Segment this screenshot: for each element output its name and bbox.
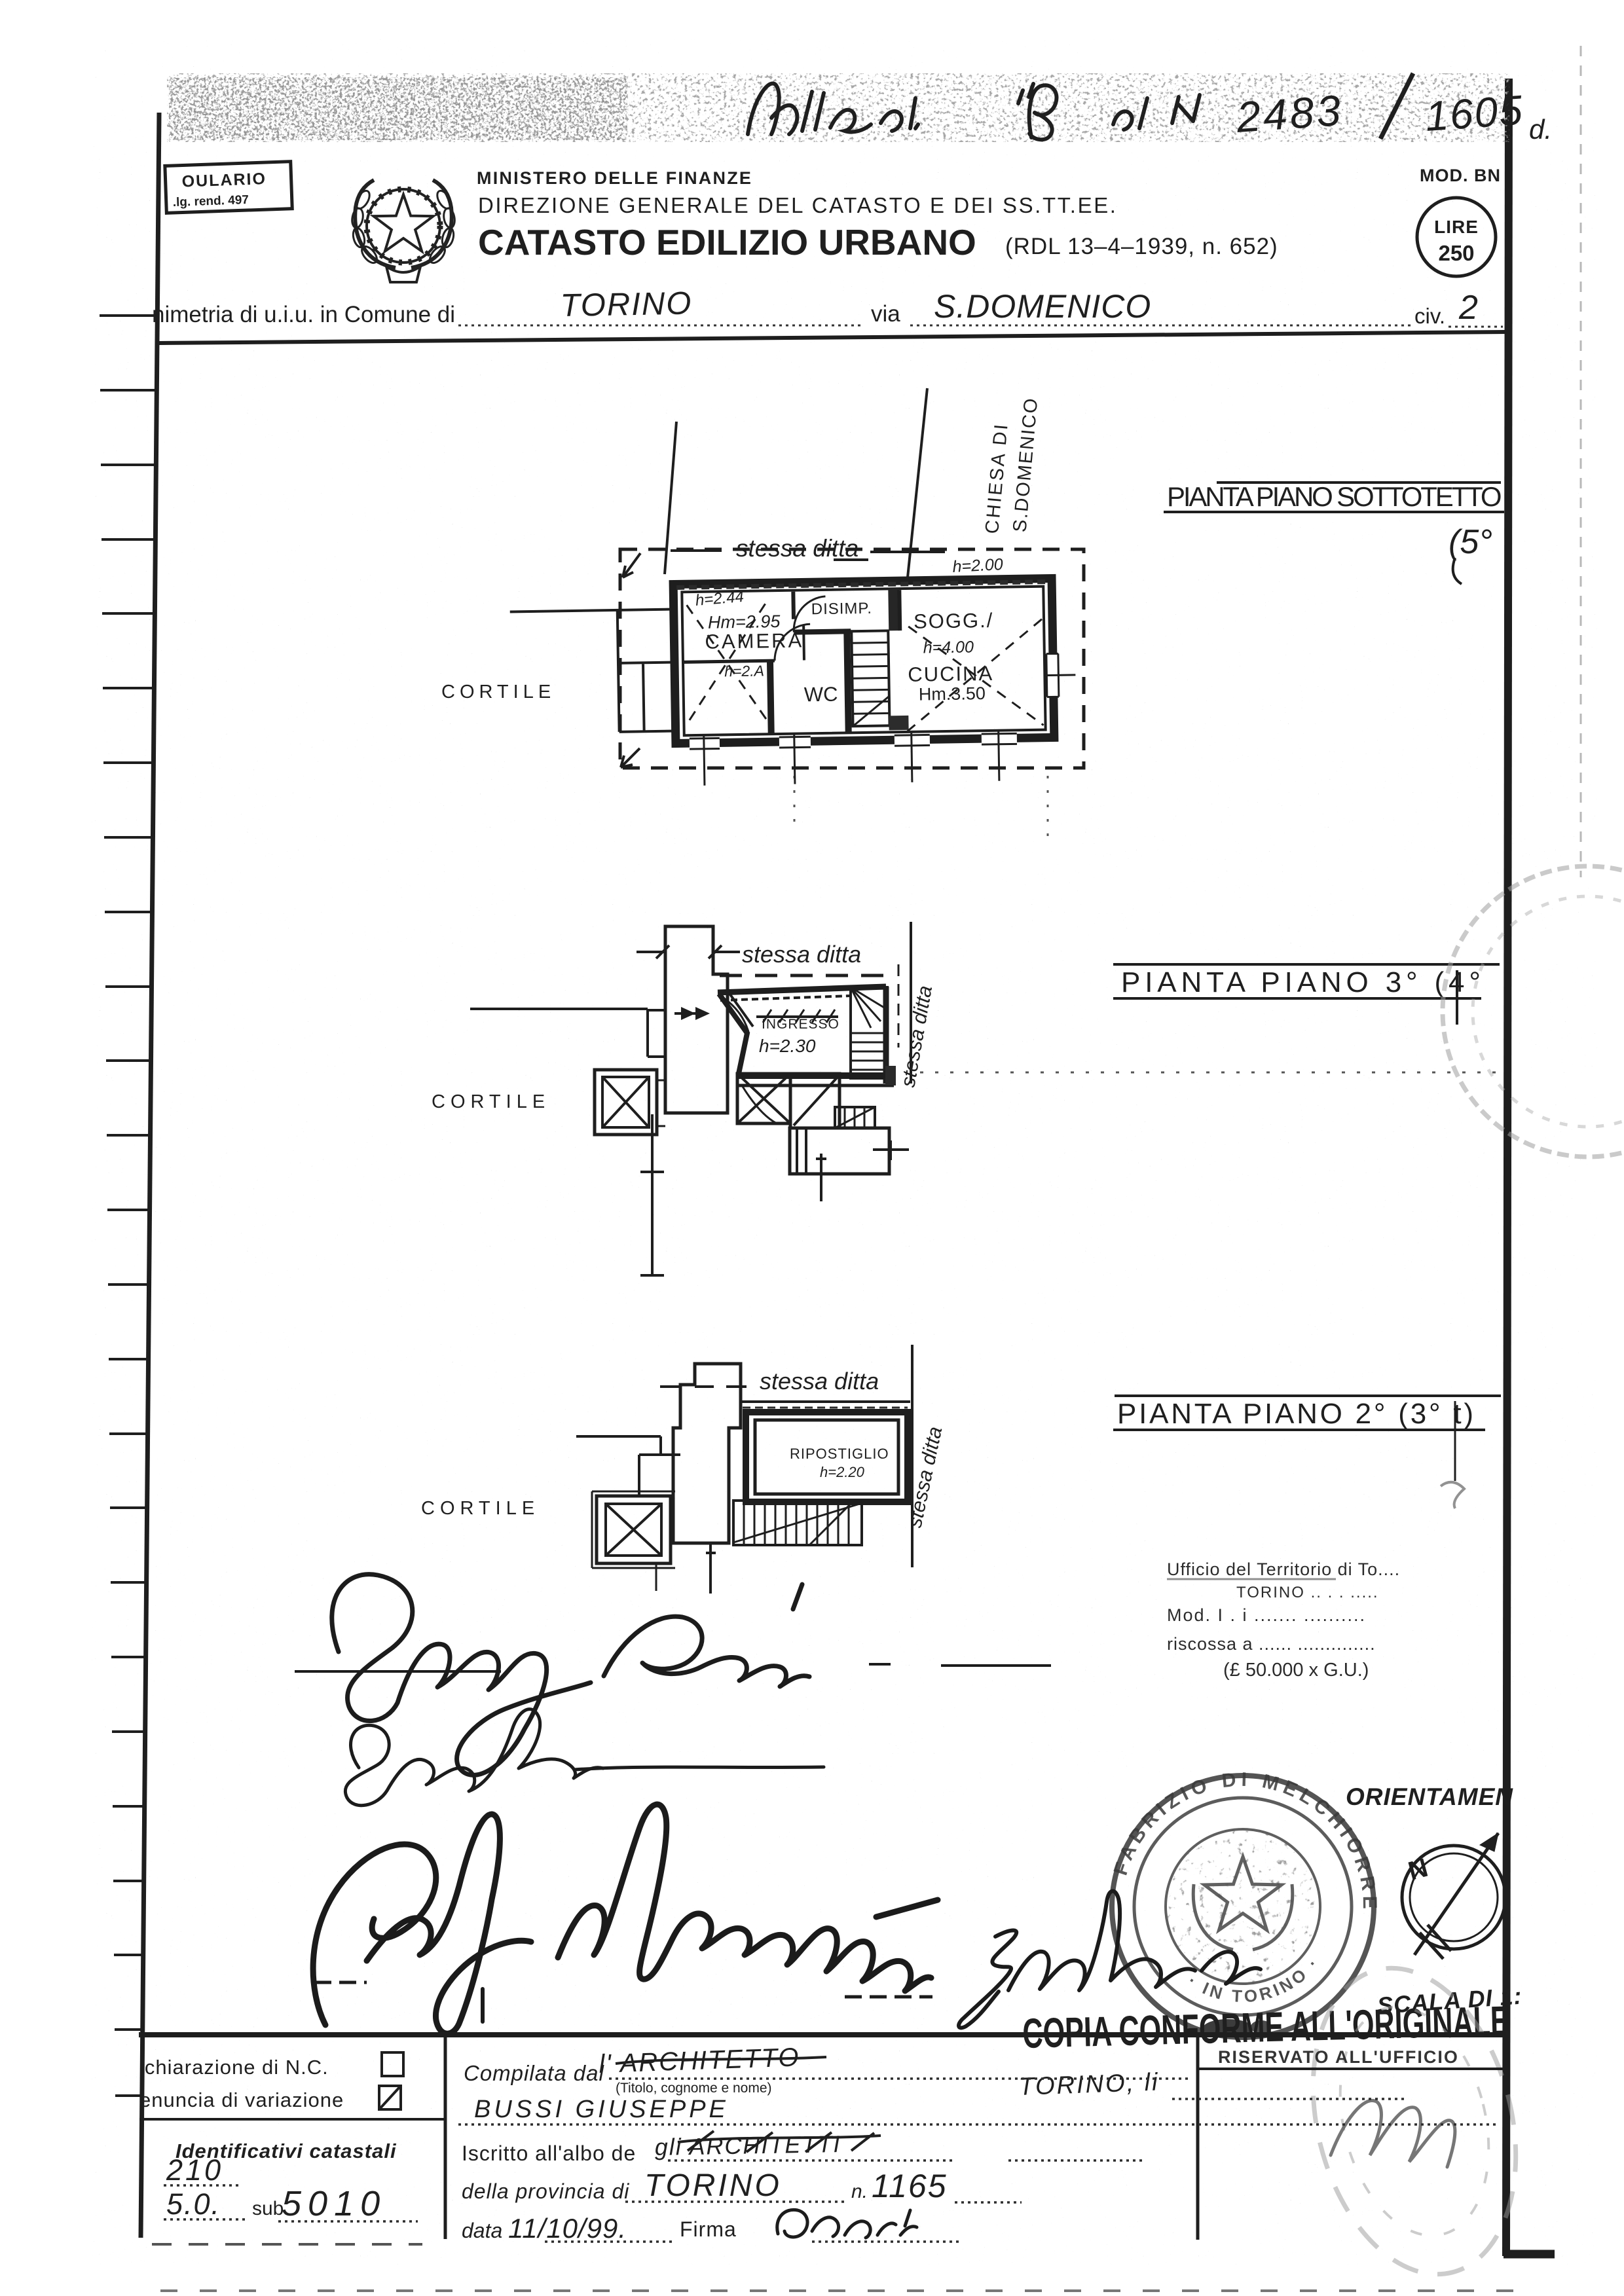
svg-text:stessa ditta: stessa ditta [760,1368,879,1394]
svg-text:(Titolo, cognome e nome): (Titolo, cognome e nome) [616,2081,772,2096]
svg-text:DISIMP.: DISIMP. [811,600,873,618]
svg-text:CORTILE: CORTILE [432,1091,550,1112]
svg-text:210: 210 [166,2153,223,2187]
svg-text:Mod. I . i ....... ..........: Mod. I . i ....... .......... [1167,1605,1366,1625]
svg-text:stessa ditta: stessa ditta [742,941,861,968]
svg-text:MOD. BN: MOD. BN [1420,166,1501,185]
svg-text:TORINO .. . . .....: TORINO .. . . ..... [1236,1584,1379,1601]
svg-text:250: 250 [1438,241,1474,265]
svg-text:CORTILE: CORTILE [441,682,555,702]
svg-text:CORTILE: CORTILE [421,1498,540,1519]
svg-text:MINISTERO DELLE FINANZE: MINISTERO DELLE FINANZE [477,168,752,188]
svg-text:TORINO: TORINO [560,285,693,323]
svg-text:d.: d. [1529,114,1552,145]
svg-text:ORIENTAMEN: ORIENTAMEN [1346,1783,1513,1810]
svg-text:LIRE: LIRE [1434,217,1479,237]
svg-text:PIANTA PIANO 3° (4°: PIANTA PIANO 3° (4° [1121,966,1481,998]
svg-text:WC: WC [804,683,838,706]
svg-text:1605: 1605 [1424,86,1525,140]
svg-text:2: 2 [1458,289,1478,327]
svg-text:OULARIO: OULARIO [181,170,267,191]
svg-text:(RDL 13–4–1939, n. 652): (RDL 13–4–1939, n. 652) [1005,234,1278,259]
svg-text:h=4.00: h=4.00 [923,638,974,657]
svg-text:CATASTO EDILIZIO URBANO: CATASTO EDILIZIO URBANO [478,222,976,263]
svg-text:5010: 5010 [282,2184,386,2223]
svg-text:SOGG./: SOGG./ [913,609,994,633]
svg-text:Compilata dal: Compilata dal [464,2061,604,2085]
svg-text:S.DOMENICO: S.DOMENICO [934,288,1151,325]
svg-text:1165: 1165 [872,2168,948,2204]
svg-text:Hm.3.50: Hm.3.50 [919,683,986,704]
svg-text:riscossa a ...... ............: riscossa a ...... .............. [1167,1634,1376,1654]
svg-text:Iscritto all'albo de: Iscritto all'albo de [462,2141,636,2165]
svg-text:della provincia di: della provincia di [462,2179,629,2203]
svg-text:CUCINA: CUCINA [908,662,993,686]
svg-text:nimetria di u.i.u. in Comune d: nimetria di u.i.u. in Comune di [152,302,455,327]
svg-text:RISERVATO ALL'UFFICIO: RISERVATO ALL'UFFICIO [1218,2047,1459,2067]
svg-text:TORINO: TORINO [644,2168,782,2203]
svg-text:(5°: (5° [1449,523,1492,561]
svg-text:Firma: Firma [680,2217,737,2241]
svg-text:h=2.20: h=2.20 [820,1464,865,1480]
svg-text:RIPOSTIGLIO: RIPOSTIGLIO [790,1446,889,1462]
svg-text:.lg. rend. 497: .lg. rend. 497 [172,193,249,210]
svg-text:PIANTA PIANO SOTTOTETTO: PIANTA PIANO SOTTOTETTO [1167,481,1502,512]
svg-text:BUSSI GIUSEPPE: BUSSI GIUSEPPE [474,2096,729,2123]
svg-text:h=2.A: h=2.A [724,662,764,680]
svg-text:5.0.: 5.0. [166,2187,221,2221]
svg-text:h=2.30: h=2.30 [759,1036,816,1056]
svg-text:n.: n. [851,2181,868,2202]
svg-text:DIREZIONE GENERALE DEL CATASTO: DIREZIONE GENERALE DEL CATASTO E DEI SS.… [478,193,1118,217]
svg-text:11/10/99.: 11/10/99. [508,2213,627,2244]
svg-text:Ufficio del Territorio di To..: Ufficio del Territorio di To.... [1167,1559,1400,1579]
svg-text:TORINO, li: TORINO, li [1018,2069,1160,2101]
svg-text:ichiarazione di N.C.: ichiarazione di N.C. [139,2056,329,2079]
svg-text:enuncia di variazione: enuncia di variazione [139,2088,344,2111]
svg-text:2483: 2483 [1234,86,1345,141]
svg-text:(£ 50.000 x G.U.): (£ 50.000 x G.U.) [1223,1660,1369,1681]
svg-text:CAMERA: CAMERA [705,629,803,653]
svg-text:data: data [462,2219,502,2242]
svg-text:civ.: civ. [1414,304,1445,328]
svg-text:h=2.00: h=2.00 [952,555,1004,576]
svg-text:via: via [871,301,900,327]
